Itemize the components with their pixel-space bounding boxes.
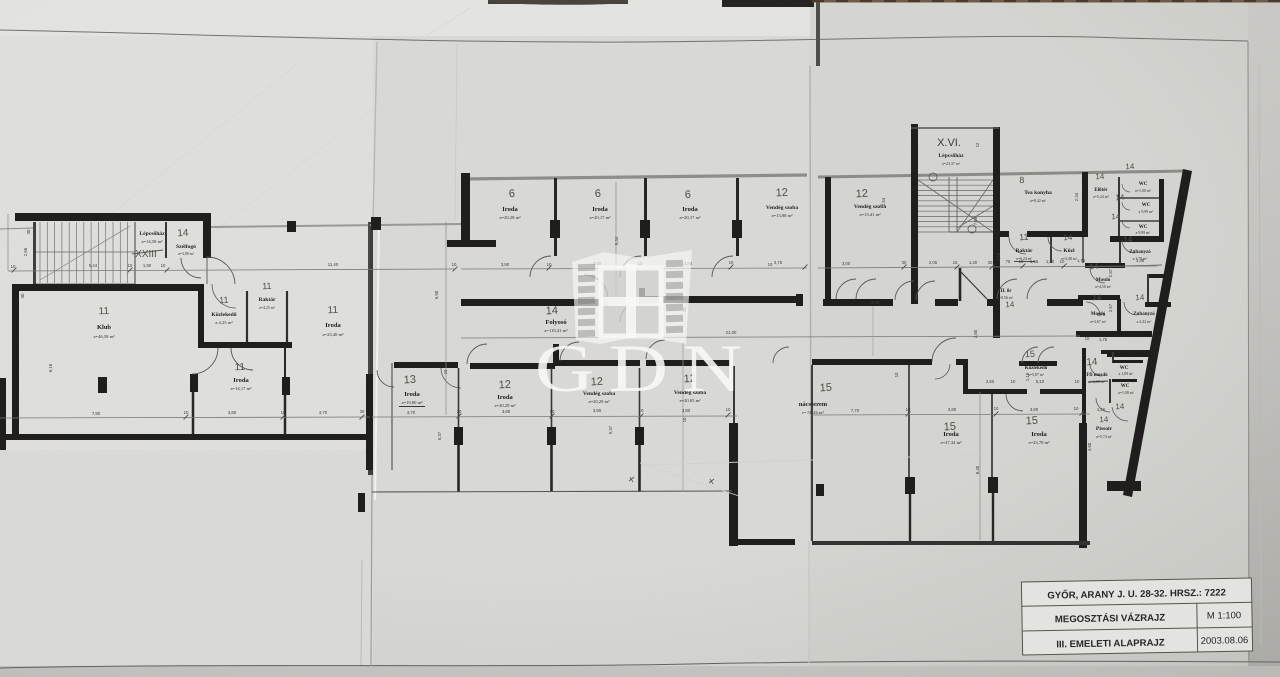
svg-text:III. EMELETI ALAPRAJZ: III. EMELETI ALAPRAJZ [1056,638,1165,651]
svg-text:30: 30 [360,409,365,414]
svg-text:6,90: 6,90 [434,290,439,299]
svg-text:10: 10 [161,263,166,268]
svg-text:11: 11 [262,281,272,291]
svg-text:Ffi mosdó: Ffi mosdó [1086,373,1108,378]
svg-text:Folyosó: Folyosó [545,319,566,326]
svg-text:Lépcsőház: Lépcsőház [139,231,165,237]
svg-text:14: 14 [1095,172,1105,181]
svg-text:2,34: 2,34 [1074,192,1079,201]
svg-text:5,10: 5,10 [1036,379,1045,384]
svg-text:10: 10 [184,410,189,415]
svg-text:15: 15 [819,382,832,395]
svg-text:14: 14 [1123,235,1133,244]
svg-text:III. őr: III. őr [998,289,1012,294]
svg-text:15: 15 [943,421,956,434]
svg-text:12: 12 [975,142,980,147]
svg-text:14: 14 [1125,162,1135,171]
svg-text:14: 14 [1099,415,1109,424]
svg-text:WC: WC [1142,203,1151,208]
svg-text:3,80: 3,80 [948,407,957,412]
svg-text:10: 10 [452,262,457,267]
svg-text:1,75: 1,75 [1077,258,1086,263]
svg-text:1,75: 1,75 [1099,337,1108,342]
svg-text:Vendég szoba: Vendég szoba [766,205,798,211]
svg-text:14: 14 [1111,212,1121,221]
svg-text:WC: WC [1139,225,1148,230]
svg-text:10: 10 [128,263,133,268]
svg-text:14: 14 [1089,262,1099,271]
svg-text:5,37: 5,37 [437,431,442,440]
svg-text:30: 30 [988,260,993,265]
svg-text:WC: WC [1139,182,1148,187]
svg-text:6: 6 [508,188,515,200]
svg-text:3,00: 3,00 [842,261,851,266]
svg-text:11: 11 [327,305,338,317]
svg-text:1,56: 1,56 [1097,407,1106,412]
svg-text:14: 14 [1092,293,1102,302]
svg-text:12: 12 [498,379,511,392]
svg-text:nácsterem: nácsterem [799,401,828,408]
svg-text:WC: WC [1121,384,1130,389]
svg-text:10: 10 [547,262,552,267]
svg-text:10: 10 [682,417,687,422]
svg-text:10: 10 [443,369,448,374]
svg-text:Klub: Klub [97,324,111,331]
svg-text:7,80: 7,80 [92,411,101,416]
svg-text:10: 10 [639,408,644,413]
svg-text:Iroda: Iroda [233,377,249,384]
svg-text:WC: WC [1120,366,1129,371]
svg-text:Vendég szoba: Vendég szoba [854,204,886,210]
svg-text:15: 15 [953,260,958,265]
svg-text:M 1:100: M 1:100 [1207,610,1242,622]
svg-text:11: 11 [98,306,109,318]
svg-text:10: 10 [1011,379,1016,384]
svg-text:6,16: 6,16 [48,363,53,372]
svg-text:10: 10 [768,262,773,267]
svg-text:2,50: 2,50 [986,379,995,384]
svg-text:14: 14 [1115,193,1125,202]
svg-text:11: 11 [234,362,245,374]
svg-text:15: 15 [1025,415,1038,428]
svg-text:3,75: 3,75 [774,260,783,265]
svg-text:15: 15 [1025,349,1036,360]
svg-text:6: 6 [684,189,691,201]
svg-text:2,80: 2,80 [973,329,978,338]
svg-text:10: 10 [457,409,462,414]
svg-text:14: 14 [1086,357,1098,369]
svg-text:Közlekedő: Közlekedő [211,312,236,318]
svg-text:X.VI.: X.VI. [937,137,961,149]
svg-text:Mosdó: Mosdó [1096,278,1111,283]
svg-text:10: 10 [729,260,734,265]
svg-text:Raktár: Raktár [258,297,276,303]
svg-text:Lépcsőház: Lépcsőház [938,153,964,159]
svg-text:Szélfogó: Szélfogó [176,244,196,250]
svg-text:3,90: 3,90 [501,262,510,267]
svg-text:10: 10 [1074,406,1079,411]
svg-text:2,68: 2,68 [996,252,1001,261]
svg-text:14: 14 [1115,402,1125,411]
svg-text:30: 30 [902,260,907,265]
svg-text:5,34: 5,34 [614,236,619,245]
svg-text:Iroda: Iroda [404,391,420,398]
svg-text:10: 10 [11,264,16,269]
svg-text:3,70: 3,70 [407,410,416,415]
svg-text:Iroda: Iroda [502,206,518,213]
svg-text:1,40: 1,40 [969,260,978,265]
svg-text:3,80: 3,80 [502,409,511,414]
svg-text:2,87: 2,87 [1108,268,1113,277]
svg-text:12: 12 [775,187,788,200]
svg-text:1,20: 1,20 [1046,259,1055,264]
svg-text:13: 13 [403,374,416,387]
svg-text:12: 12 [855,188,868,201]
svg-text:11: 11 [1019,232,1029,242]
svg-text:3,70: 3,70 [319,410,328,415]
svg-text:14: 14 [545,305,558,318]
svg-text:3,80: 3,80 [1030,407,1039,412]
svg-text:Iroda: Iroda [682,206,698,213]
svg-text:6: 6 [594,188,601,200]
svg-text:8: 8 [1019,175,1025,185]
svg-text:2,05: 2,05 [929,260,938,265]
svg-text:11: 11 [219,295,229,305]
svg-text:Zuhanyzó: Zuhanyzó [1133,312,1155,317]
svg-text:2,57: 2,57 [1108,303,1113,312]
svg-text:10: 10 [550,409,555,414]
svg-text:Közlekedő: Közlekedő [1025,366,1048,371]
svg-text:Előtér: Előtér [1094,188,1108,193]
svg-text:14: 14 [1063,233,1073,242]
svg-text:GDN: GDN [535,332,757,407]
svg-text:Mosdó: Mosdó [1091,312,1106,317]
svg-text:Tea konyha: Tea konyha [1024,190,1052,196]
svg-text:Zuhanyzó: Zuhanyzó [1129,250,1151,255]
svg-text:4,60: 4,60 [1087,442,1092,451]
svg-text:14: 14 [1135,293,1145,302]
svg-text:10: 10 [726,407,731,412]
svg-text:14: 14 [1005,300,1015,309]
svg-text:Iroda: Iroda [1031,431,1047,438]
svg-text:75: 75 [1006,259,1011,264]
svg-text:Iroda: Iroda [592,206,608,213]
svg-text:3,80: 3,80 [682,408,691,413]
svg-text:MEGOSZTÁSI VÁZRAJZ: MEGOSZTÁSI VÁZRAJZ [1055,612,1166,626]
svg-text:10: 10 [906,407,911,412]
svg-text:10: 10 [994,406,999,411]
svg-text:8,40: 8,40 [975,465,980,474]
svg-text:2,66: 2,66 [23,247,28,256]
svg-text:10: 10 [1075,379,1080,384]
svg-text:5,44: 5,44 [89,263,98,268]
svg-text:3,80: 3,80 [593,408,602,413]
svg-text:10: 10 [281,410,286,415]
svg-text:XXIII: XXIII [135,249,157,260]
svg-text:30: 30 [26,229,31,234]
svg-text:7,70: 7,70 [851,408,860,413]
svg-text:Pissoir: Pissoir [1096,426,1113,432]
svg-text:30: 30 [20,293,25,298]
svg-text:2003.08.06: 2003.08.06 [1201,635,1249,647]
svg-text:Iroda: Iroda [497,394,513,401]
svg-text:11,40: 11,40 [328,262,339,267]
svg-text:10: 10 [1085,336,1090,341]
svg-text:14: 14 [177,228,189,240]
svg-text:Közl: Közl [1063,248,1075,254]
svg-text:7,58: 7,58 [973,216,978,225]
svg-text:Iroda: Iroda [325,322,341,329]
svg-text:3,80: 3,80 [228,410,237,415]
svg-text:3,00: 3,00 [871,300,880,305]
svg-text:Raktár: Raktár [1015,248,1033,254]
svg-text:10: 10 [894,372,899,377]
svg-text:9,37: 9,37 [608,425,613,434]
svg-text:1,90: 1,90 [143,263,152,268]
